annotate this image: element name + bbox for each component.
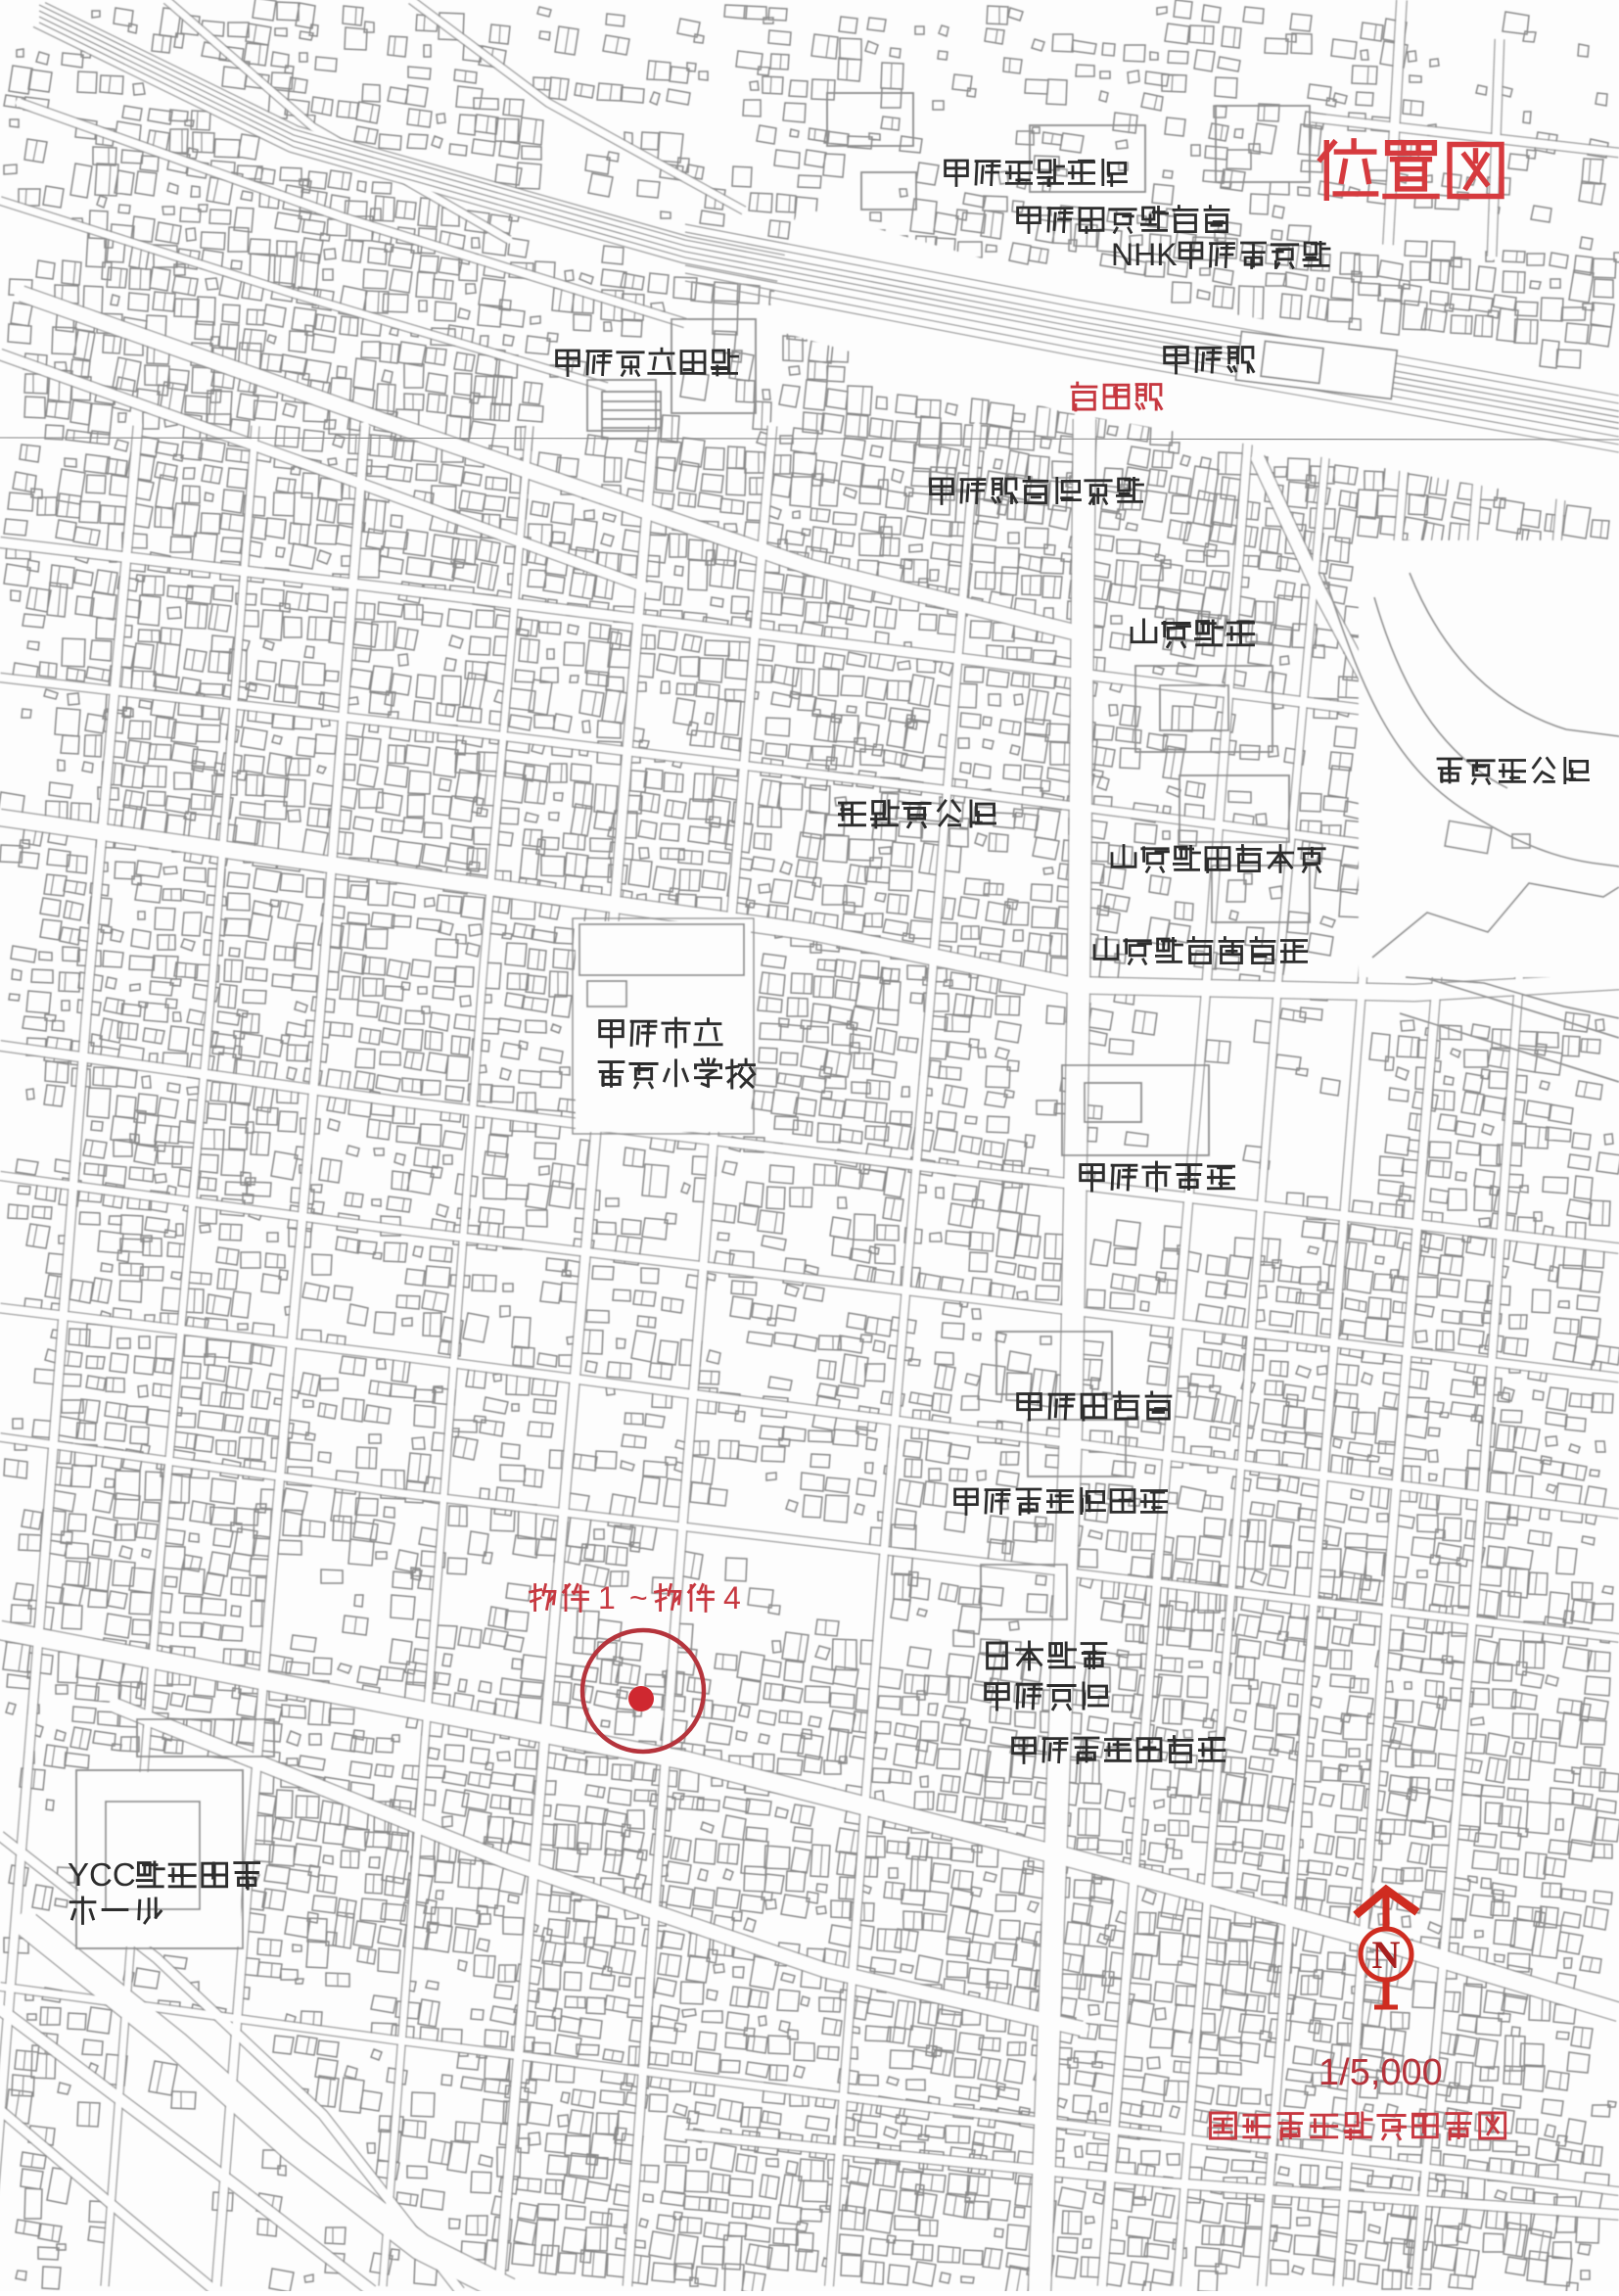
svg-text:4: 4: [723, 1580, 741, 1616]
svg-text:~: ~: [629, 1580, 648, 1616]
svg-text:NHK: NHK: [1111, 237, 1178, 272]
svg-text:1/5,000: 1/5,000: [1318, 2052, 1443, 2093]
svg-text:YCC: YCC: [68, 1856, 136, 1893]
svg-text:N: N: [1372, 1933, 1401, 1977]
svg-text:1: 1: [598, 1580, 616, 1616]
